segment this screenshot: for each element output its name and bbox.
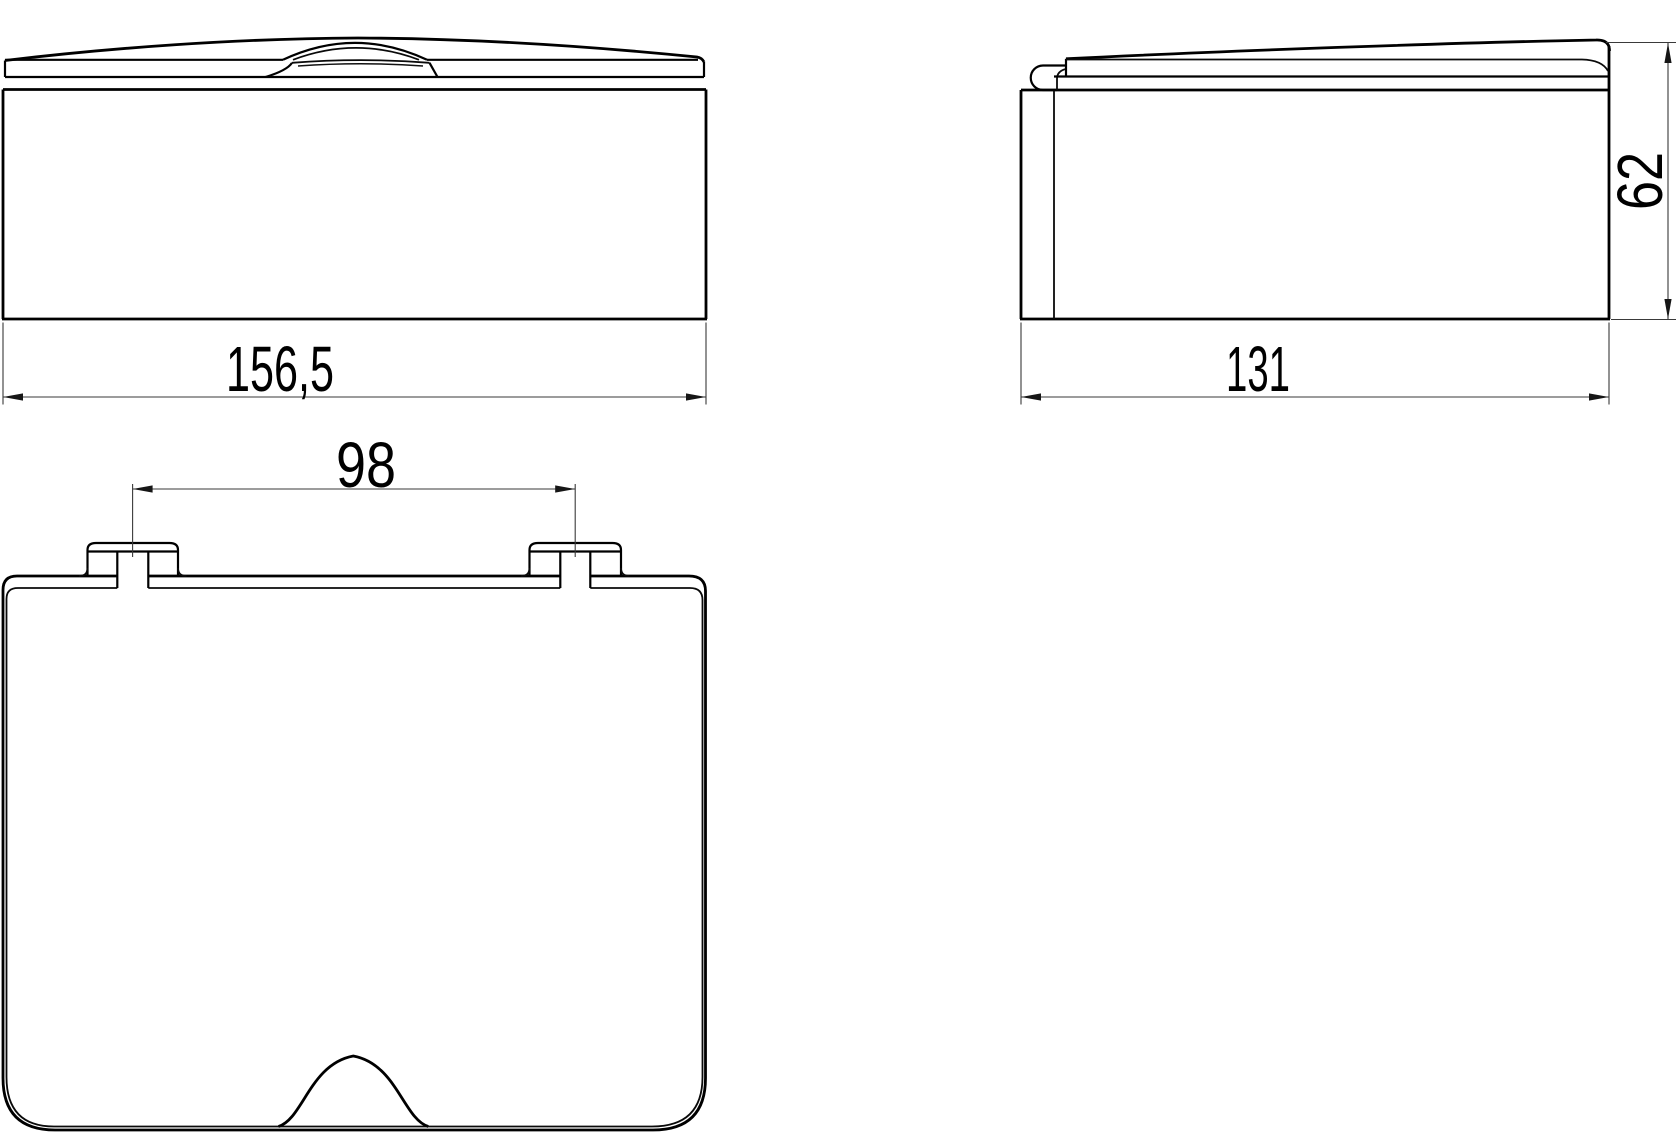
arrowhead-bottom [1664, 299, 1671, 319]
technical-drawing-sheet: 156,5 131 62 [0, 0, 1680, 1134]
dim-label-front-width: 156,5 [226, 333, 334, 405]
front-recess-top-arc [292, 60, 430, 63]
front-recess-left [266, 63, 293, 77]
side-lid-crown [1066, 40, 1610, 59]
arrowhead-left [1021, 393, 1041, 400]
dim-extension-lines [3, 323, 706, 405]
dim-extension-lines [1021, 323, 1609, 405]
dim-front-width: 156,5 [3, 323, 706, 406]
side-lid-top-edge [1066, 60, 1608, 72]
plan-bottom-notch [279, 1056, 429, 1127]
three-view-technical-drawing: 156,5 131 62 [0, 0, 1680, 1134]
plan-view [3, 543, 706, 1130]
front-lid-crown [5, 38, 704, 62]
front-recess-inner-arc [298, 64, 423, 66]
plan-outer-contour [3, 576, 706, 1130]
dim-label-hinge-spacing: 98 [336, 429, 396, 501]
arrowhead-right [555, 485, 575, 492]
dim-hinge-spacing: 98 [133, 429, 576, 557]
dim-side-depth: 131 [1021, 323, 1609, 406]
arrowhead-top [1664, 43, 1671, 63]
arrowhead-right [686, 393, 706, 400]
front-view [2, 38, 707, 319]
dim-side-height: 62 [1604, 43, 1676, 320]
dim-label-side-depth: 131 [1226, 333, 1290, 405]
front-recess-right [430, 63, 438, 77]
front-body-outline [2, 90, 707, 320]
arrowhead-right [1589, 393, 1609, 400]
plan-inner-contour [7, 588, 703, 1127]
front-lid-bottom-edge [5, 61, 704, 78]
side-hinge-knuckle [1031, 66, 1066, 91]
front-handle-bump-outer [283, 43, 427, 60]
side-body-outline [1020, 46, 1610, 319]
side-view [1020, 40, 1610, 319]
dim-label-side-height: 62 [1604, 152, 1676, 210]
side-hinge-knuckle-inner [1057, 69, 1066, 90]
arrowhead-left [133, 485, 153, 492]
arrowhead-left [3, 393, 23, 400]
